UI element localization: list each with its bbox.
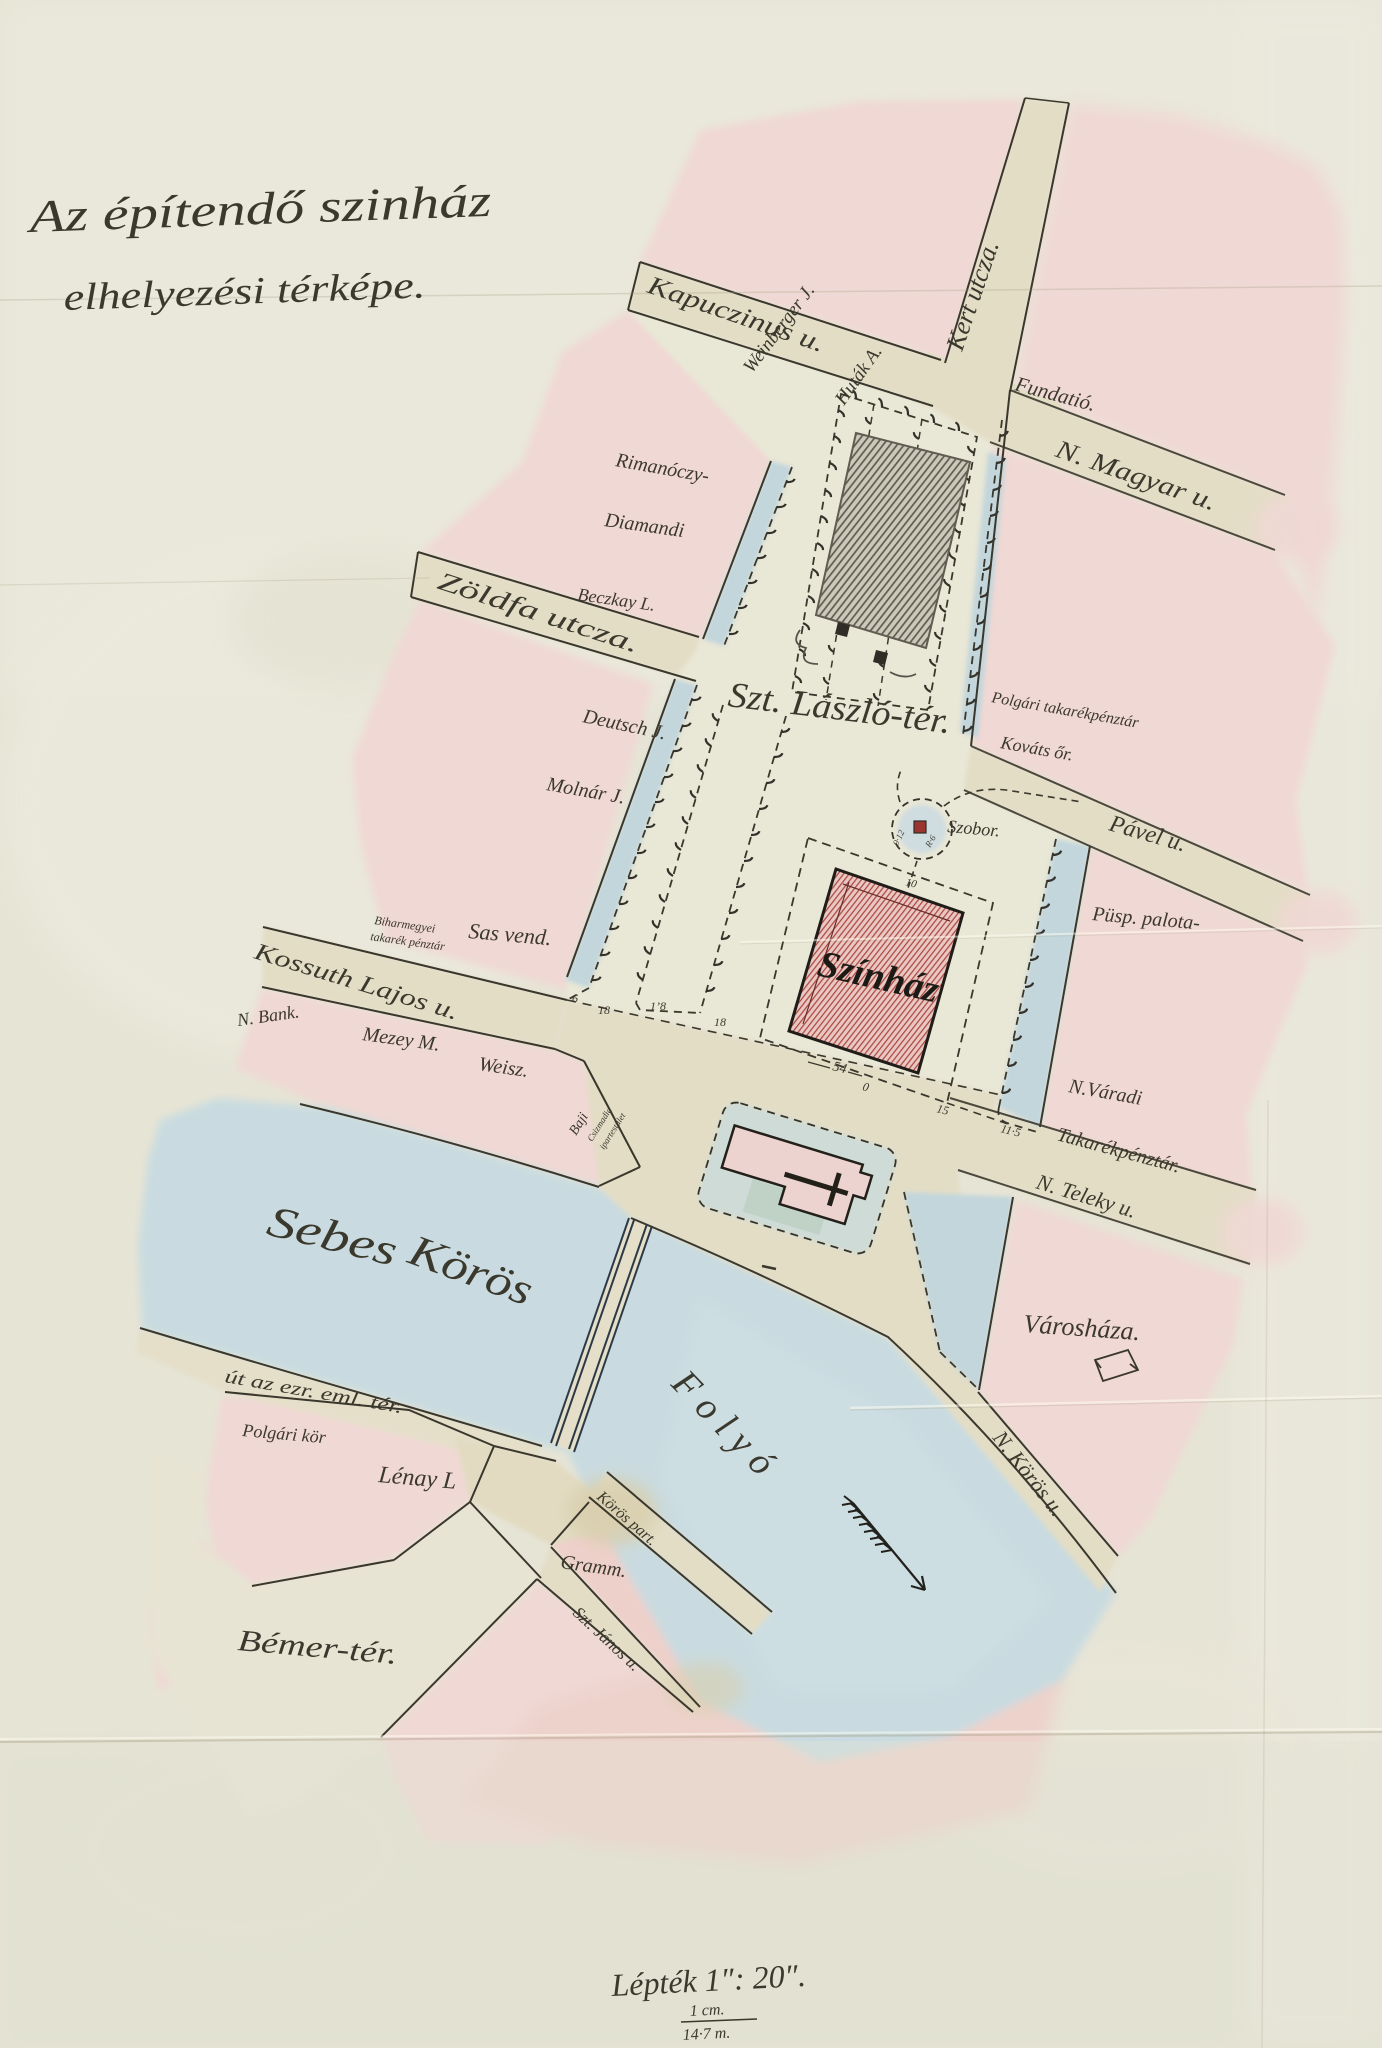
svg-text:1 cm.: 1 cm. <box>689 2001 724 2020</box>
svg-text:1’8: 1’8 <box>650 999 666 1013</box>
svg-text:6: 6 <box>572 991 578 1005</box>
svg-text:18: 18 <box>598 1003 610 1017</box>
svg-text:18: 18 <box>714 1015 726 1029</box>
svg-text:14·7 m.: 14·7 m. <box>682 2025 730 2044</box>
